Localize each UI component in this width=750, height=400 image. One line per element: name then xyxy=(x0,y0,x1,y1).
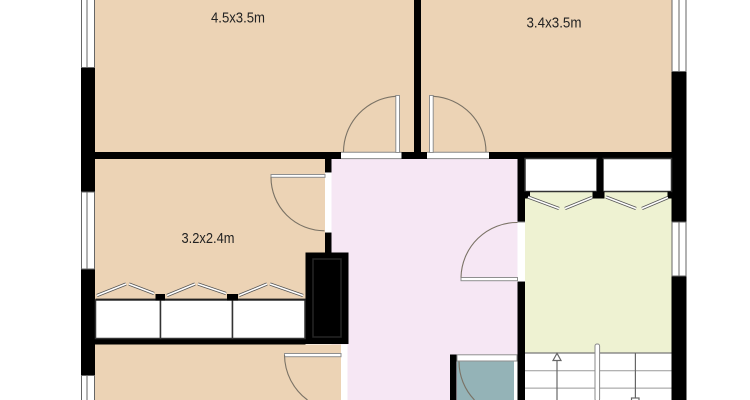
svg-text:3.4x3.5m: 3.4x3.5m xyxy=(527,16,582,32)
svg-text:4.5x3.5m: 4.5x3.5m xyxy=(211,11,265,27)
svg-text:3.2x2.4m: 3.2x2.4m xyxy=(182,231,235,247)
